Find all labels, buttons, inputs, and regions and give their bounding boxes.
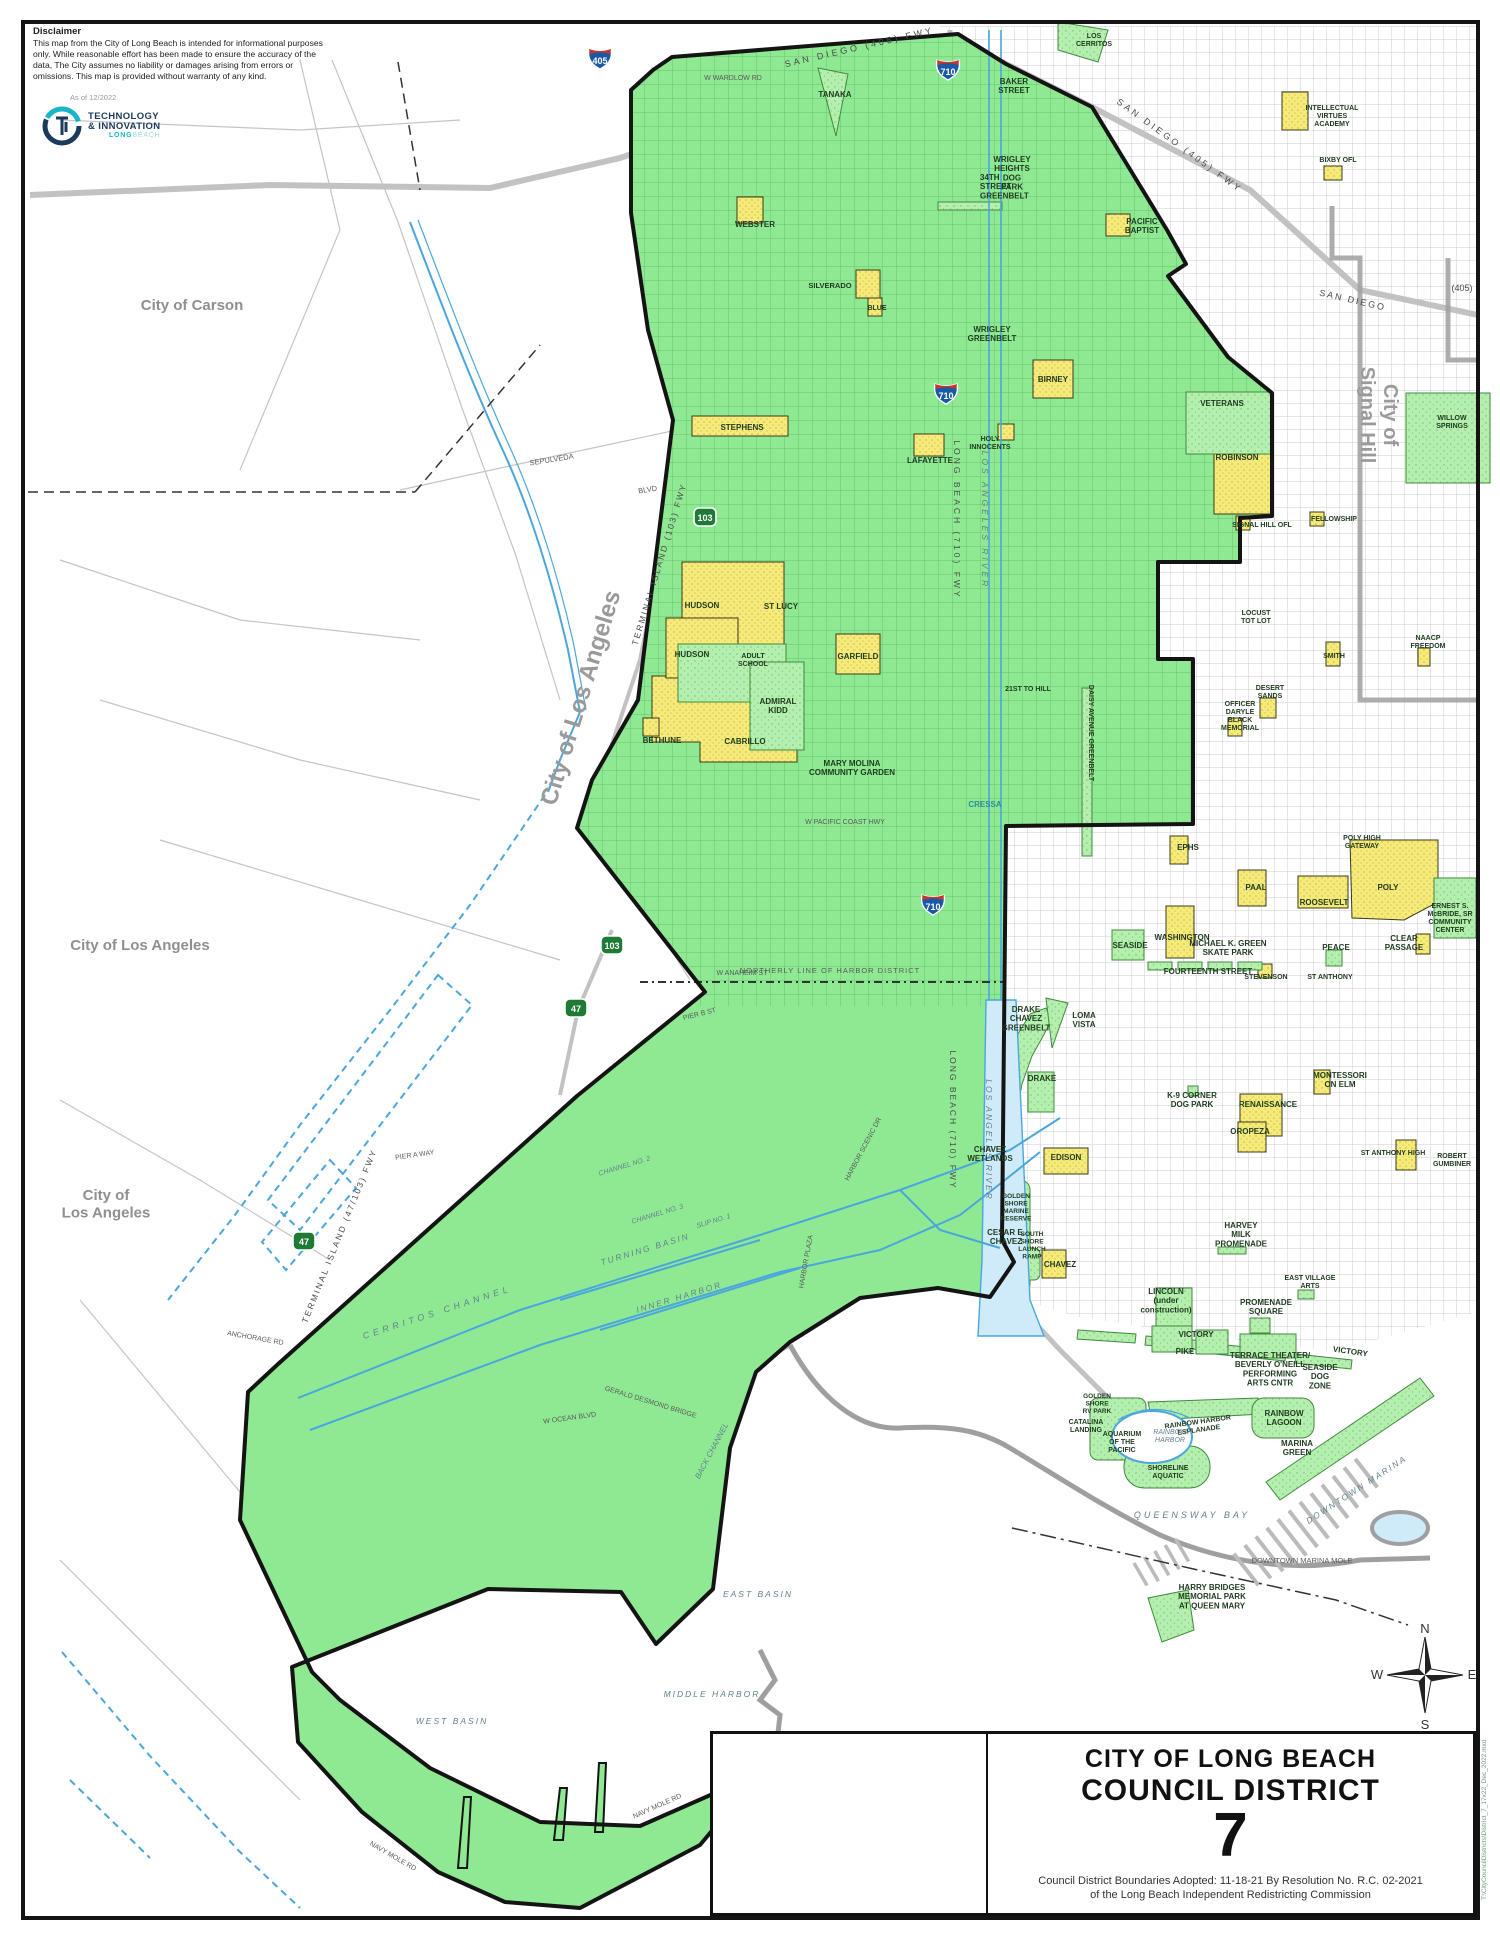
map-label: NORTHERLY LINE OF HARBOR DISTRICT (740, 966, 921, 975)
park-yellow (856, 270, 880, 298)
map-page: 4057107107101031034747 SAN DIEGO (405) F… (0, 0, 1500, 1941)
map-label: GOLDENSHORERV PARK (1083, 1393, 1112, 1415)
map-label: QUEENSWAY BAY (1134, 1510, 1250, 1520)
title-block-empty-cell (713, 1734, 988, 1913)
map-label: K-9 CORNERDOG PARK (1167, 1091, 1217, 1109)
svg-text:710: 710 (938, 391, 953, 401)
map-label: BETHUNE (643, 736, 682, 745)
map-label: HARRY BRIDGESMEMORIAL PARKAT QUEEN MARY (1178, 1583, 1246, 1610)
map-label: LOS ANGELES RIVER (980, 451, 990, 590)
svg-text:103: 103 (697, 513, 712, 523)
map-label: ST LUCY (764, 602, 799, 611)
map-label: DOWNTOWN MARINA MOLE (1252, 1556, 1353, 1565)
map-label: DRAKE (1028, 1074, 1057, 1083)
park-yellow (1260, 698, 1276, 718)
title-city: CITY OF LONG BEACH (1085, 1745, 1376, 1774)
map-label: OROPEZA (1230, 1127, 1270, 1136)
city-name-label: City of Los Angeles (70, 937, 209, 954)
title-block-text-cell: CITY OF LONG BEACH COUNCIL DISTRICT 7 Co… (988, 1734, 1473, 1913)
map-label: FOURTEENTH STREET (1164, 967, 1253, 976)
district-number: 7 (1213, 1808, 1247, 1864)
disclaimer-title: Disclaimer (33, 26, 329, 38)
map-label: GOLDENSHOREMARINERESERVE (1001, 1193, 1033, 1222)
ti-logo-icon (42, 106, 82, 146)
logo-line3: LONGBEACH (88, 132, 161, 139)
map-label: (405) (1451, 283, 1472, 293)
park-green (1326, 950, 1342, 966)
compass-n: N (1420, 1621, 1429, 1636)
disclaimer-body: This map from the City of Long Beach is … (33, 38, 323, 81)
map-label: CABRILLO (724, 737, 765, 746)
compass-e: E (1468, 1667, 1477, 1682)
map-label: CRESSA (968, 800, 1002, 809)
map-label: ST ANTHONY (1307, 974, 1353, 981)
park-green (1298, 1290, 1314, 1299)
map-label: HUDSON (685, 601, 720, 610)
compass-w: W (1371, 1667, 1384, 1682)
technology-innovation-logo: TECHNOLOGY & INNOVATION LONGBEACH (42, 106, 161, 146)
park-yellow (914, 434, 944, 456)
park-green (938, 202, 1002, 210)
map-label: EDISON (1051, 1153, 1082, 1162)
map-label: WEST BASIN (416, 1716, 488, 1726)
park-yellow (1282, 92, 1308, 130)
svg-text:710: 710 (925, 902, 940, 912)
map-label: CESAR E.CHAVEZ (987, 1228, 1025, 1246)
map-label: VICTORY (1178, 1330, 1214, 1339)
map-label: LONG BEACH (710) FWY (952, 440, 962, 599)
map-label: TANAKA (818, 90, 851, 99)
map-label: SIGNAL HILL OFL (1232, 522, 1292, 529)
map-label: LONG BEACH (710) FWY (948, 1050, 958, 1189)
city-name-label: City of Carson (141, 297, 244, 314)
map-label: PIKE (1176, 1347, 1195, 1356)
logo-line2: & INNOVATION (88, 122, 161, 132)
map-label: BLUE (867, 305, 886, 312)
map-label: STEPHENS (720, 423, 764, 432)
map-label: MARINAGREEN (1281, 1439, 1313, 1457)
map-label: 21ST TO HILL (1005, 686, 1051, 693)
route-47-shield-icon: 47 (565, 999, 587, 1017)
map-label: HUDSON (675, 650, 710, 659)
map-label: ROBERTGUMBINER (1433, 1153, 1471, 1168)
svg-text:710: 710 (940, 67, 955, 77)
map-label: WRIGLEYGREENBELT (968, 325, 1017, 343)
map-label: ADULTSCHOOL (738, 653, 769, 668)
svg-text:47: 47 (571, 1004, 581, 1014)
park-yellow (1166, 906, 1194, 958)
map-label: DESERTSANDS (1256, 685, 1285, 700)
title-block: CITY OF LONG BEACH COUNCIL DISTRICT 7 Co… (710, 1731, 1476, 1916)
map-label: SILVERADO (808, 281, 851, 290)
map-label: RAINBOWLAGOON (1264, 1409, 1304, 1427)
map-label: RENAISSANCE (1239, 1100, 1298, 1109)
map-label: CATALINALANDING (1069, 1419, 1104, 1434)
map-label: WILLOWSPRINGS (1436, 415, 1468, 430)
park-yellow (643, 718, 659, 736)
park-yellow (1418, 648, 1430, 666)
map-label: FELLOWSHIP (1311, 516, 1357, 523)
map-label: LAFAYETTE (907, 456, 954, 465)
adoption-note: Council District Boundaries Adopted: 11-… (1038, 1874, 1422, 1903)
map-label: BIRNEY (1038, 375, 1069, 384)
as-of-date: As of 12/2022 (70, 93, 116, 102)
park-yellow (1350, 840, 1438, 920)
map-label: EPHS (1177, 843, 1199, 852)
compass-s: S (1421, 1717, 1430, 1732)
map-label: MIDDLE HARBOR (664, 1689, 761, 1699)
disclaimer: Disclaimer This map from the City of Lon… (33, 26, 329, 82)
svg-text:47: 47 (299, 1237, 309, 1247)
map-label: SEASIDE (1112, 941, 1148, 950)
map-label: EAST BASIN (723, 1589, 793, 1599)
map-label: PAAL (1245, 883, 1266, 892)
map-label: NAACPFREEDOM (1411, 635, 1446, 650)
park-yellow (1324, 166, 1342, 180)
map-label: LOCUSTTOT LOT (1241, 610, 1272, 625)
map-label: W WARDLOW RD (704, 75, 762, 82)
district-map: 4057107107101031034747 SAN DIEGO (405) F… (0, 0, 1500, 1941)
map-label: ROOSEVELT (1300, 898, 1349, 907)
map-label: CHAVEZ (1044, 1260, 1076, 1269)
map-label: RAINBOWHARBOR (1153, 1429, 1188, 1444)
svg-text:405: 405 (592, 56, 607, 66)
map-label: BAKERSTREET (998, 77, 1030, 95)
route-103-shield-icon: 103 (694, 508, 716, 526)
route-103-shield-icon: 103 (601, 936, 623, 954)
map-label: PEACE (1322, 943, 1350, 952)
map-label: ROBINSON (1215, 453, 1258, 462)
park-green (1250, 1318, 1270, 1333)
map-label: BIXBY OFL (1319, 157, 1357, 164)
map-label: VETERANS (1200, 399, 1244, 408)
file-path-note: T:\CityCouncilDistricts\District_7_17x22… (1481, 1740, 1488, 1900)
map-label: PACIFICBAPTIST (1125, 217, 1159, 235)
map-label: DAISY AVENUE GREENBELT (1087, 685, 1094, 782)
map-label: GARFIELD (838, 652, 879, 661)
map-label: SMITH (1323, 653, 1345, 660)
map-label: STEVENSON (1244, 974, 1287, 981)
map-label: WEBSTER (735, 220, 775, 229)
map-label: SHORELINEAQUATIC (1148, 1465, 1189, 1480)
map-label: W PACIFIC COAST HWY (805, 819, 885, 826)
map-label: POLY HIGHGATEWAY (1343, 835, 1381, 850)
map-label: ST ANTHONY HIGH (1361, 1150, 1426, 1157)
map-label: LOMAVISTA (1072, 1011, 1096, 1029)
route-47-shield-icon: 47 (293, 1232, 315, 1250)
map-label: POLY (1377, 883, 1399, 892)
map-label: LOS ANGELES RIVER (984, 1079, 994, 1201)
svg-text:103: 103 (604, 941, 619, 951)
